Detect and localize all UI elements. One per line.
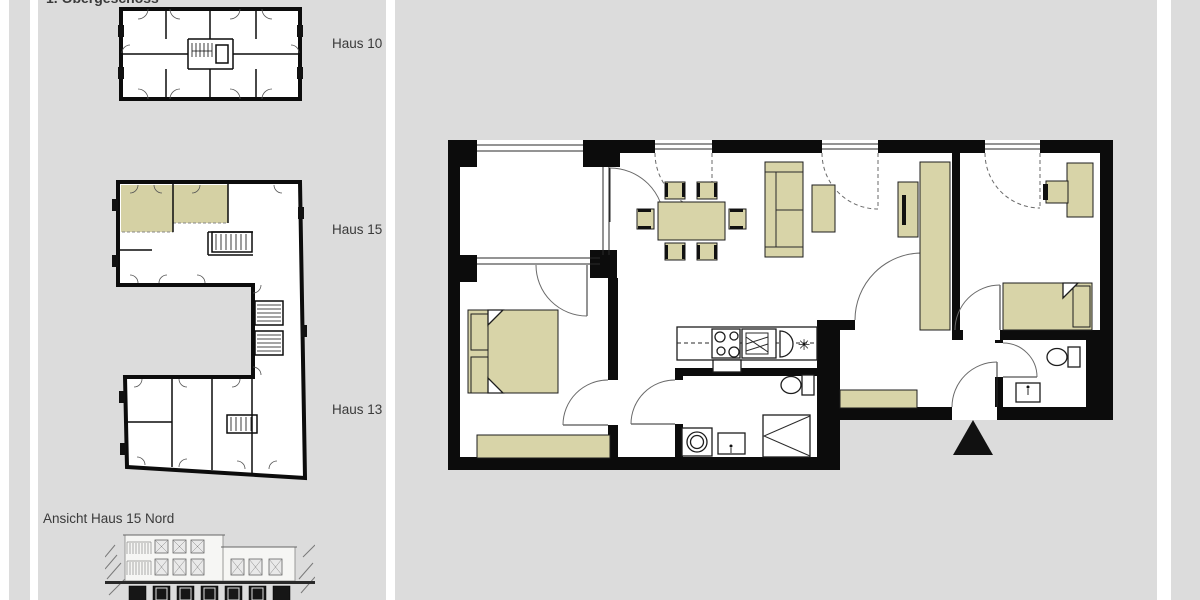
elevation-label: Ansicht Haus 15 Nord — [43, 511, 174, 526]
ground-line — [105, 581, 315, 584]
toilet-tank — [802, 375, 814, 395]
entrance-opening — [952, 407, 997, 420]
haus-15-label: Haus 15 — [332, 222, 382, 237]
wc-toilet-tank — [1068, 347, 1080, 367]
tv-board — [898, 182, 918, 237]
pillow — [471, 357, 488, 393]
ground-floor-windows — [129, 586, 290, 600]
shower — [763, 415, 810, 457]
apartment-floorplan: ✳ — [440, 125, 1130, 485]
fridge-snowflake-icon: ✳ — [798, 337, 811, 354]
entrance-arrow-icon — [953, 420, 993, 455]
dining-chair — [729, 209, 746, 229]
page-margin-strip — [30, 0, 38, 600]
dining-chair — [637, 209, 654, 229]
dining-table — [658, 202, 725, 240]
pillow — [1073, 286, 1090, 327]
bedroom-wardrobe — [477, 435, 610, 458]
haus-10-label: Haus 10 — [332, 36, 382, 51]
dining-chair — [697, 182, 717, 199]
haus-15-13-siteplan — [112, 175, 312, 490]
toilet — [781, 377, 801, 394]
wc-toilet — [1047, 349, 1067, 366]
elevation-drawing — [105, 527, 315, 600]
dining-chair — [665, 182, 685, 199]
desk — [1067, 163, 1093, 217]
haus-13-label: Haus 13 — [332, 402, 382, 417]
pillow — [471, 314, 488, 350]
page-margin-strip — [1157, 0, 1171, 600]
wardrobe — [920, 162, 950, 330]
desk-chair — [1046, 181, 1068, 203]
coffee-table — [812, 185, 835, 232]
dining-chair — [665, 243, 685, 260]
dining-chair — [697, 243, 717, 260]
tv — [902, 195, 906, 225]
panel-divider — [386, 0, 395, 600]
sideboard — [840, 390, 917, 408]
haus-10-siteplan — [118, 5, 303, 103]
page-margin-strip — [0, 0, 9, 600]
page-root: 1. Obergeschoss Haus 10 Haus 15 Haus 13 … — [0, 0, 1200, 600]
